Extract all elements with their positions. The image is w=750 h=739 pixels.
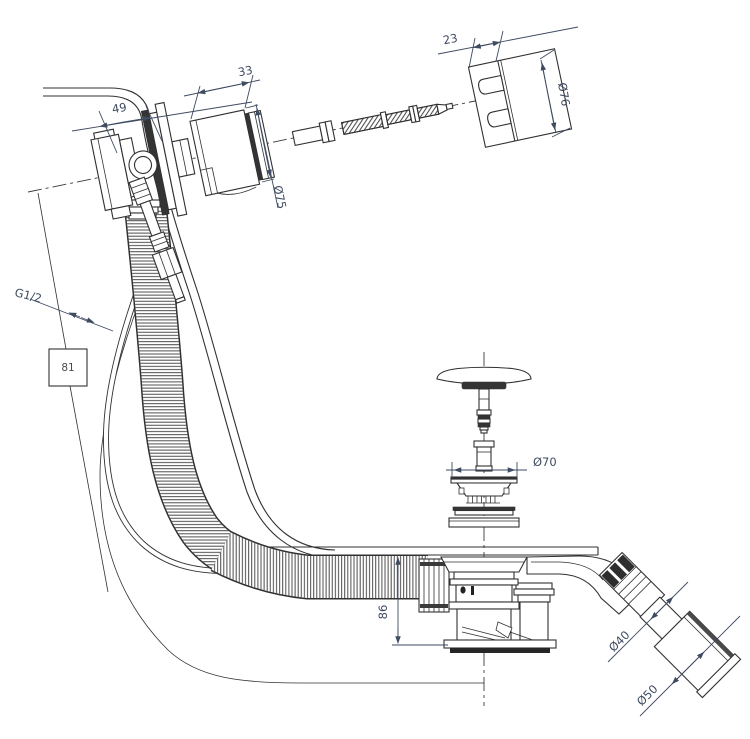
dim-75-label: Ø75: [271, 184, 290, 210]
dim-40-label: Ø40: [606, 628, 633, 655]
trap-logo-mark: [460, 586, 465, 593]
dim-g12: G1/2: [13, 285, 113, 331]
plug-dome-cap: [437, 367, 531, 384]
technical-drawing-canvas: 49 33 Ø75 23 Ø76 G1/: [0, 0, 750, 739]
bathtub-drain-diagram: 49 33 Ø75 23 Ø76 G1/: [0, 0, 750, 739]
dim-g12-label: G1/2: [13, 285, 43, 305]
dim-70: Ø70: [446, 455, 557, 478]
ref-81: 81: [38, 193, 108, 592]
dim-50-label: Ø50: [634, 682, 661, 709]
ref-81-label: 81: [61, 362, 74, 374]
backing-ring: [449, 518, 519, 527]
drain-trap: [419, 552, 741, 697]
dim-33-label: 33: [237, 63, 254, 80]
corrugated-overflow-hose: [146, 212, 428, 577]
dim-86-label: 86: [376, 605, 390, 620]
dim-23-label: 23: [442, 31, 459, 48]
dim-33: 33: [184, 63, 260, 119]
strainer-cone: [457, 483, 511, 496]
drain-plug-stack: [437, 367, 531, 527]
rotary-cable-shaft: [292, 96, 455, 148]
plug-gasket: [462, 382, 506, 389]
trap-inlet-nut: [419, 559, 449, 612]
trap-mounting-flange: [441, 557, 527, 572]
dim-49-label: 49: [111, 100, 128, 116]
trap-outlet-riser: [514, 583, 554, 640]
overflow-rosette: [190, 107, 276, 201]
trap-base: [444, 640, 556, 648]
plug-adapter: [474, 441, 494, 447]
dim-70-label: Ø70: [533, 455, 557, 469]
